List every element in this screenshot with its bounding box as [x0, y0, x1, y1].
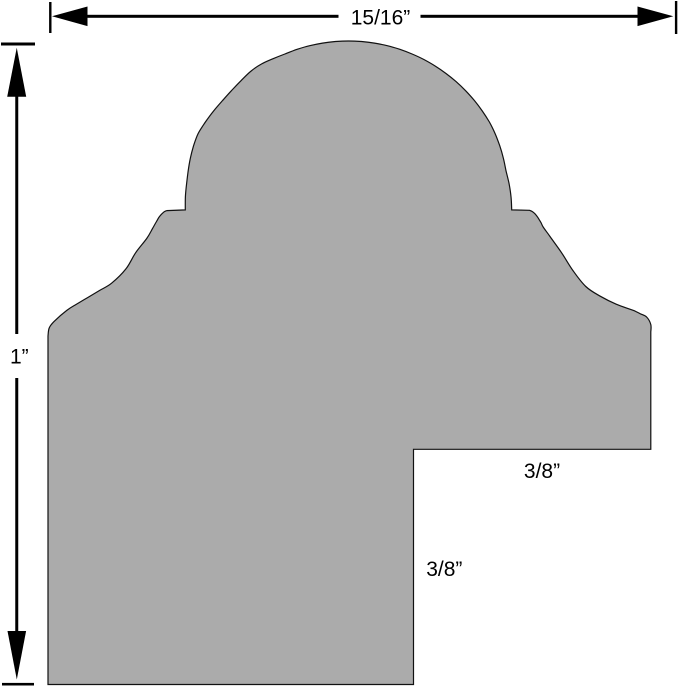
svg-text:15/16”: 15/16”: [351, 6, 411, 29]
svg-text:3/8”: 3/8”: [426, 558, 462, 581]
svg-text:1”: 1”: [10, 346, 29, 369]
svg-text:3/8”: 3/8”: [524, 460, 560, 483]
